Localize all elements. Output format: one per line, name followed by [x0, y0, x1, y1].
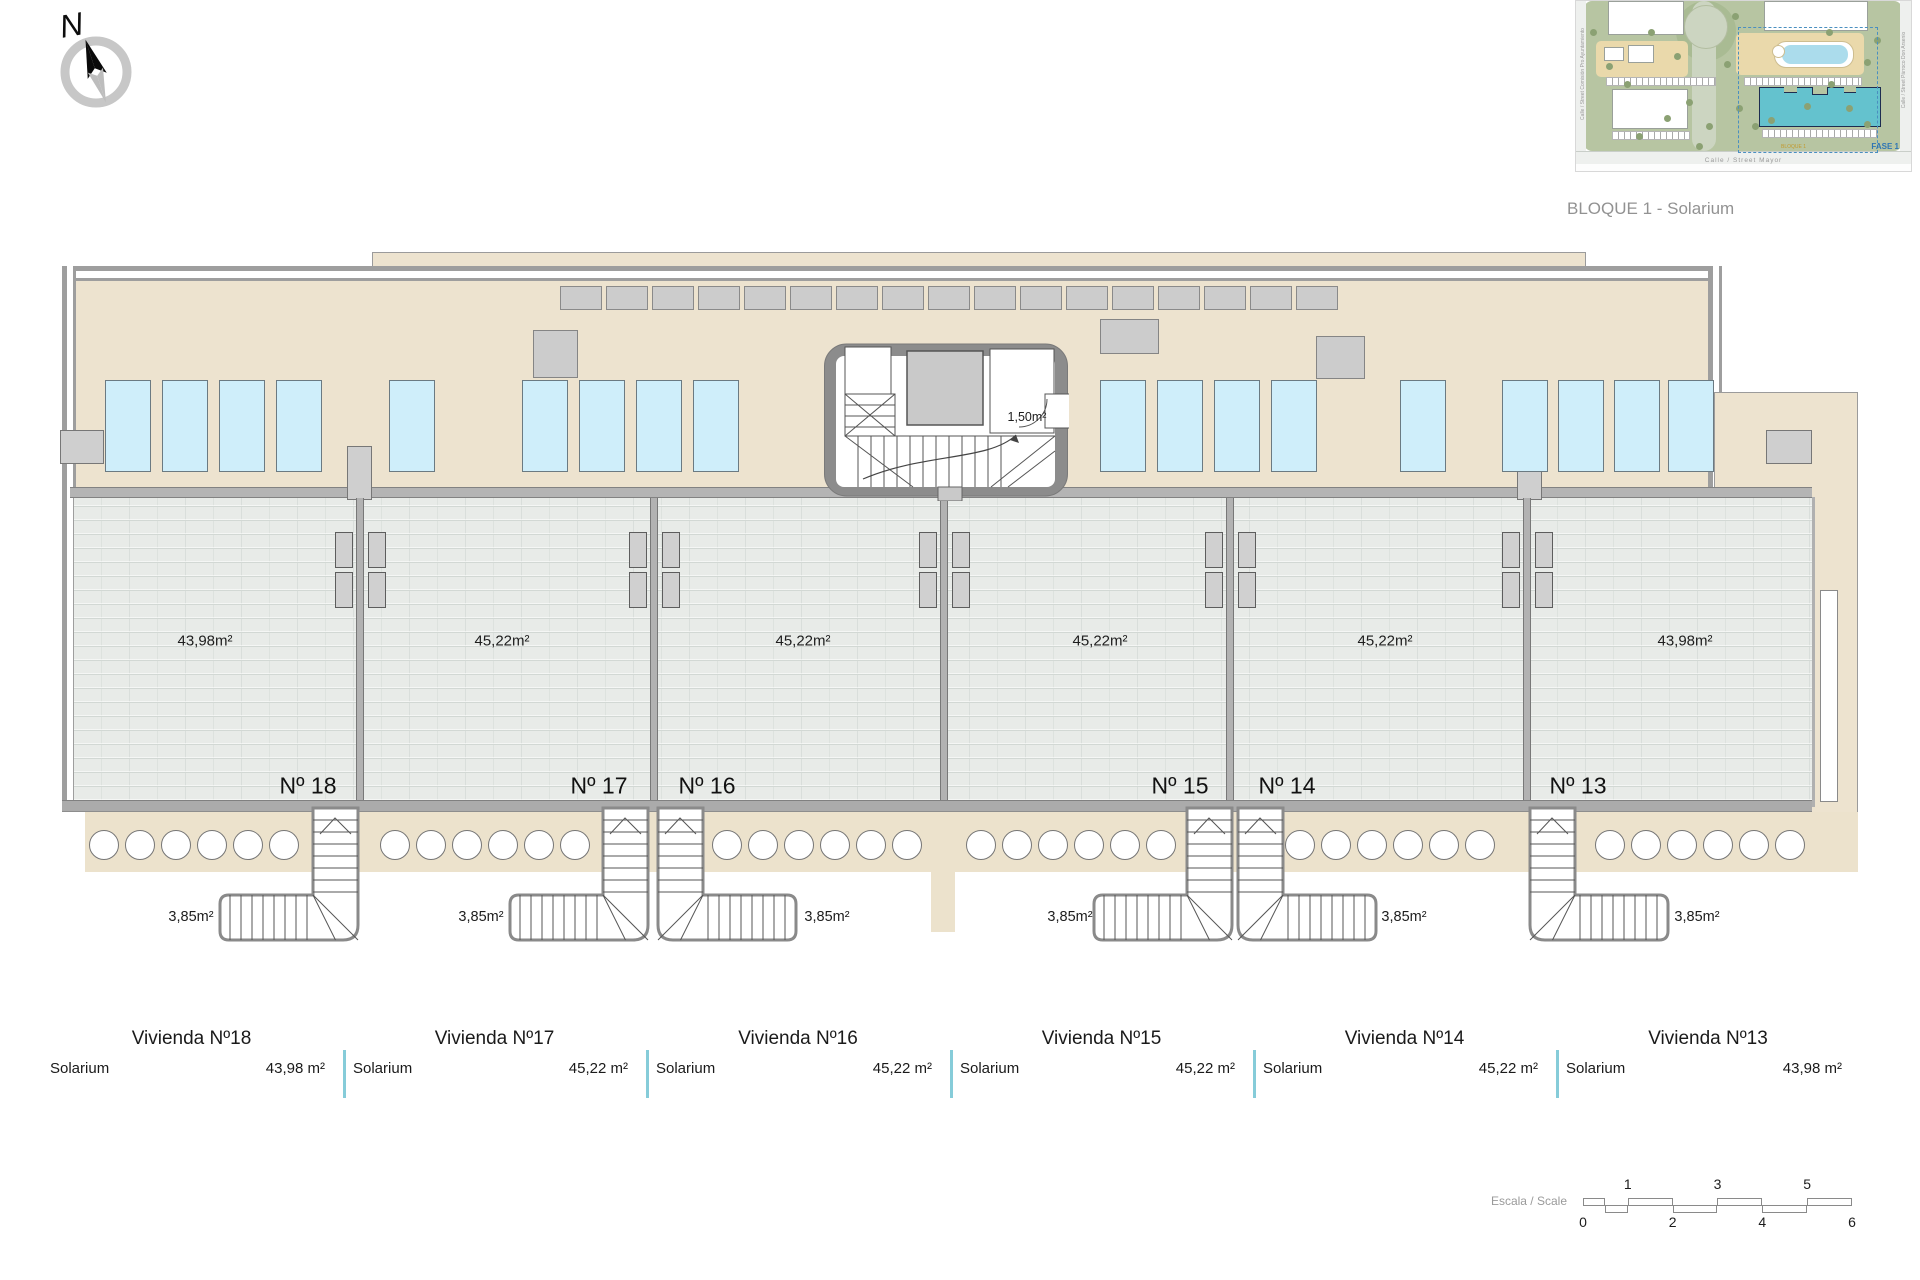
site-tree [1686, 99, 1693, 106]
solar-panel [1271, 380, 1317, 472]
site-plan-fase-boundary [1738, 27, 1878, 153]
unit-stair [656, 806, 798, 946]
vent-box [1535, 572, 1553, 608]
site-roundabout [1684, 5, 1728, 49]
compass-letter: N [57, 5, 87, 45]
legend-room-label: Solarium [353, 1060, 412, 1077]
stair-area-label: 3,85m² [458, 909, 503, 925]
site-plan-thumbnail: FASE 1 BLOQUE 1 Calle / Street Mayor Cal… [1575, 0, 1912, 172]
legend-area-value: 43,98 m² [266, 1060, 325, 1077]
scale-number: 0 [1579, 1214, 1587, 1230]
rooftop-unit [652, 286, 694, 310]
planter-circle [1703, 830, 1733, 860]
site-building [1608, 1, 1684, 35]
scale-number: 3 [1714, 1176, 1722, 1192]
site-plan-fase-label: FASE 1 [1871, 142, 1899, 151]
stair-area-label: 3,85m² [1381, 909, 1426, 925]
solar-panel [1100, 380, 1146, 472]
planter-circle [161, 830, 191, 860]
planter-circle [856, 830, 886, 860]
party-wall [1226, 498, 1234, 800]
vent-box [629, 532, 647, 568]
stair-area-label: 3,85m² [168, 909, 213, 925]
rooftop-unit [744, 286, 786, 310]
solar-panel [693, 380, 739, 472]
solar-panel [162, 380, 208, 472]
terrace-center-stub [931, 872, 955, 932]
compass-north-icon: N [46, 2, 156, 122]
legend-room-label: Solarium [50, 1060, 109, 1077]
vent-box [662, 572, 680, 608]
legend-area-value: 45,22 m² [1176, 1060, 1235, 1077]
scale-number: 1 [1624, 1176, 1632, 1192]
legend-column: Vivienda Nº13Solarium43,98 m² [1556, 1020, 1860, 1105]
unit-stair [1236, 806, 1378, 946]
solar-panel [389, 380, 435, 472]
vent-box [662, 532, 680, 568]
solar-panel [522, 380, 568, 472]
rooftop-unit [974, 286, 1016, 310]
planter-circle [1002, 830, 1032, 860]
vent-box [1502, 572, 1520, 608]
solar-panel [1400, 380, 1446, 472]
vent-box [1205, 572, 1223, 608]
solarium-area-label: 45,22m² [775, 633, 830, 650]
vent-box [1535, 532, 1553, 568]
scale-number: 4 [1758, 1214, 1766, 1230]
vent-box [919, 532, 937, 568]
solar-panel [579, 380, 625, 472]
unit-stair [1092, 806, 1234, 946]
vent-box [952, 532, 970, 568]
solar-panel [219, 380, 265, 472]
scale-number: 5 [1803, 1176, 1811, 1192]
planter-circle [416, 830, 446, 860]
planter-circle [820, 830, 850, 860]
vent-box [629, 572, 647, 608]
stair-area-label: 3,85m² [804, 909, 849, 925]
site-plan-street-left: Calle / Street Comisión Pro Ayuntamiento [1580, 4, 1586, 144]
planter-circle [1667, 830, 1697, 860]
scale-label: Escala / Scale [1455, 1194, 1567, 1208]
north-wall [62, 266, 1722, 281]
rooftop-unit [1066, 286, 1108, 310]
party-wall [356, 498, 364, 800]
deck-structure [1604, 47, 1624, 61]
rooftop-unit [928, 286, 970, 310]
site-tree [1696, 143, 1703, 150]
unit-number-label: Nº 16 [679, 773, 736, 800]
legend-column: Vivienda Nº14Solarium45,22 m² [1253, 1020, 1556, 1105]
vent-box [1238, 532, 1256, 568]
legend-column: Vivienda Nº15Solarium45,22 m² [950, 1020, 1253, 1105]
unit-stair [218, 806, 360, 946]
legend-room-label: Solarium [656, 1060, 715, 1077]
vent-box [919, 572, 937, 608]
stairwell-area-label: 1,50m² [1008, 410, 1047, 424]
terrace-row [1606, 77, 1716, 86]
solar-panel [276, 380, 322, 472]
rooftop-unit [698, 286, 740, 310]
unit-number-label: Nº 17 [571, 773, 628, 800]
site-tree [1624, 81, 1631, 88]
party-wall-pillar [347, 446, 372, 500]
planter-circle [1429, 830, 1459, 860]
deck-structure [1628, 45, 1654, 63]
planter-circle [892, 830, 922, 860]
scale-number: 6 [1848, 1214, 1856, 1230]
rooftop-equipment [1316, 336, 1365, 379]
rooftop-unit [606, 286, 648, 310]
solar-panel [105, 380, 151, 472]
scale-segment [1605, 1205, 1627, 1213]
vent-box [335, 572, 353, 608]
solar-panel [1614, 380, 1660, 472]
unit-number-label: Nº 13 [1550, 773, 1607, 800]
rooftop-equipment [533, 330, 578, 378]
legend-vivienda-title: Vivienda Nº16 [646, 1028, 950, 1050]
site-plan-street-right: Calle / Street Párroco Don Arsenio [1901, 0, 1907, 140]
site-tree [1606, 63, 1613, 70]
legend-area-value: 43,98 m² [1783, 1060, 1842, 1077]
stairwell-room [845, 347, 891, 394]
planter-circle [1465, 830, 1495, 860]
legend-room-label: Solarium [960, 1060, 1019, 1077]
terrace-row [1612, 131, 1690, 140]
planter-circle [966, 830, 996, 860]
planter-circle [125, 830, 155, 860]
site-tree [1636, 133, 1643, 140]
solarium-area-label: 45,22m² [1072, 633, 1127, 650]
legend-area-value: 45,22 m² [569, 1060, 628, 1077]
party-wall [650, 498, 658, 800]
unit-number-label: Nº 15 [1152, 773, 1209, 800]
planter-circle [1038, 830, 1068, 860]
rooftop-unit [790, 286, 832, 310]
floor-plan-page: N FASE 1 BLOQUE 1 Calle / Street Mayor C… [0, 0, 1920, 1280]
page-title: BLOQUE 1 - Solarium [1567, 199, 1734, 219]
site-plan-street-bottom: Calle / Street Mayor [1576, 157, 1911, 164]
solarium-area-label: 43,98m² [1657, 633, 1712, 650]
site-tree [1732, 13, 1739, 20]
rooftop-unit [1112, 286, 1154, 310]
legend-room-label: Solarium [1566, 1060, 1625, 1077]
east-facade-vent [1766, 430, 1812, 464]
planter-circle [1739, 830, 1769, 860]
rooftop-unit [1250, 286, 1292, 310]
party-wall [940, 498, 948, 800]
east-service-channel [1820, 590, 1838, 802]
vent-box [335, 532, 353, 568]
stairwell-core: 1,50m² [823, 341, 1069, 501]
legend-vivienda-title: Vivienda Nº18 [40, 1028, 343, 1050]
planter-circle [1393, 830, 1423, 860]
site-plan-block-label: BLOQUE 1 [1781, 144, 1806, 150]
planter-circle [89, 830, 119, 860]
legend-vivienda-title: Vivienda Nº14 [1253, 1028, 1556, 1050]
scale-segment [1717, 1198, 1762, 1206]
legend-column: Vivienda Nº17Solarium45,22 m² [343, 1020, 646, 1105]
solarium-area-label: 43,98m² [177, 633, 232, 650]
solarium-area-label: 45,22m² [474, 633, 529, 650]
scale-segment [1583, 1198, 1605, 1206]
scale-segment [1762, 1205, 1807, 1213]
stair-area-label: 3,85m² [1047, 909, 1092, 925]
vent-box [1502, 532, 1520, 568]
legend-room-label: Solarium [1263, 1060, 1322, 1077]
vent-box [952, 572, 970, 608]
site-tree [1648, 29, 1655, 36]
scale-segment [1628, 1198, 1673, 1206]
legend-column: Vivienda Nº18Solarium43,98 m² [40, 1020, 343, 1105]
rooftop-unit [1020, 286, 1062, 310]
rooftop-equipment [1100, 319, 1159, 354]
legend-area-value: 45,22 m² [1479, 1060, 1538, 1077]
scale-number: 2 [1669, 1214, 1677, 1230]
rooftop-unit [882, 286, 924, 310]
legend-vivienda-title: Vivienda Nº15 [950, 1028, 1253, 1050]
unit-stair [508, 806, 650, 946]
legend-area-value: 45,22 m² [873, 1060, 932, 1077]
site-tree [1590, 29, 1597, 36]
vent-box [1205, 532, 1223, 568]
solarium-area-label: 45,22m² [1357, 633, 1412, 650]
planter-circle [452, 830, 482, 860]
stair-area-label: 3,85m² [1674, 909, 1719, 925]
planter-circle [380, 830, 410, 860]
planter-circle [1775, 830, 1805, 860]
scale-segment [1673, 1205, 1718, 1213]
elevator-shaft [907, 351, 983, 425]
vent-box [368, 532, 386, 568]
door-opening [1045, 394, 1069, 428]
legend-vivienda-title: Vivienda Nº13 [1556, 1028, 1860, 1050]
party-wall [1523, 498, 1531, 800]
site-tree [1724, 61, 1731, 68]
west-facade-vent [60, 430, 104, 464]
rooftop-unit [1158, 286, 1200, 310]
solar-panel [1157, 380, 1203, 472]
rooftop-unit [560, 286, 602, 310]
solar-panel [1502, 380, 1548, 472]
solar-panel [1214, 380, 1260, 472]
vent-box [368, 572, 386, 608]
scale-segment [1807, 1198, 1852, 1206]
unit-number-label: Nº 14 [1259, 773, 1316, 800]
site-tree [1706, 123, 1713, 130]
legend-vivienda-title: Vivienda Nº17 [343, 1028, 646, 1050]
solar-panel [1668, 380, 1714, 472]
site-tree [1674, 53, 1681, 60]
rooftop-unit [1296, 286, 1338, 310]
rooftop-unit [1204, 286, 1246, 310]
legend-column: Vivienda Nº16Solarium45,22 m² [646, 1020, 950, 1105]
unit-stair [1528, 806, 1670, 946]
unit-number-label: Nº 18 [280, 773, 337, 800]
rooftop-unit [836, 286, 878, 310]
site-tree [1664, 115, 1671, 122]
site-building [1612, 89, 1688, 129]
solar-panel [636, 380, 682, 472]
solar-panel [1558, 380, 1604, 472]
vent-box [1238, 572, 1256, 608]
